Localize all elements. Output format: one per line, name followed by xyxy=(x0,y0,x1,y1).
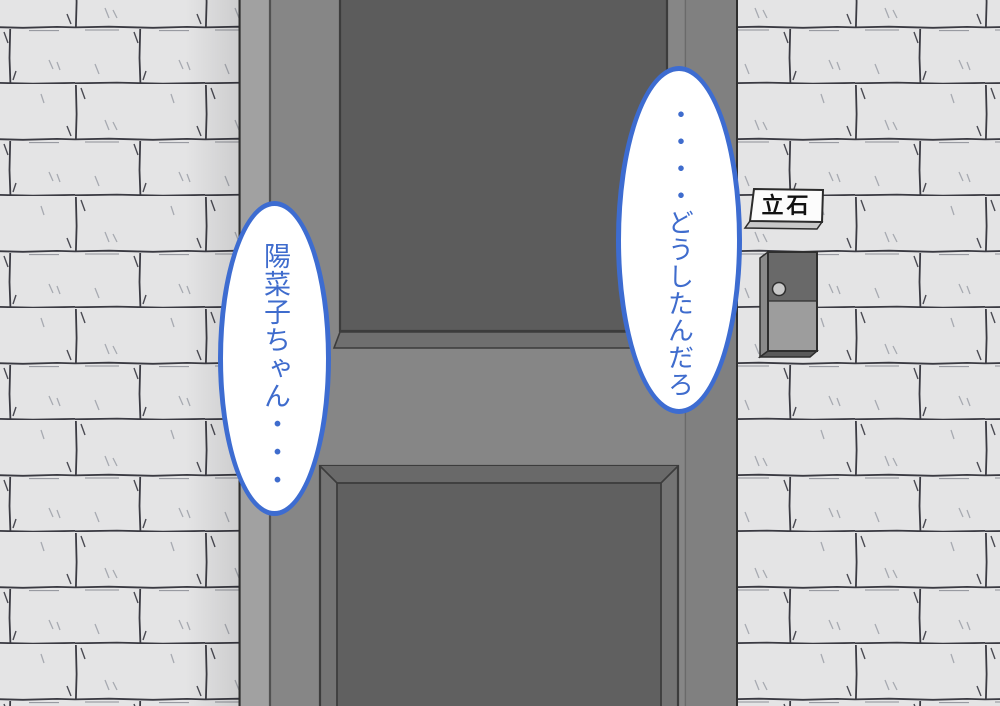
doorbell xyxy=(760,252,817,357)
background-art xyxy=(0,0,1000,706)
door-lower-panel xyxy=(320,466,678,706)
nameplate-label: 立石 xyxy=(750,192,823,221)
speech-bubble-right: ・・・・どうしたんだろ xyxy=(616,66,742,414)
visual-novel-scene[interactable]: 立石 ・・・・どうしたんだろ 陽菜子ちゃん・・・ xyxy=(0,0,1000,706)
doorbell-button xyxy=(773,283,786,296)
speech-bubble-left: 陽菜子ちゃん・・・ xyxy=(218,201,331,516)
speech-text-left: 陽菜子ちゃん・・・ xyxy=(255,242,294,494)
speech-text-right: ・・・・どうしたんだろ xyxy=(661,101,698,398)
